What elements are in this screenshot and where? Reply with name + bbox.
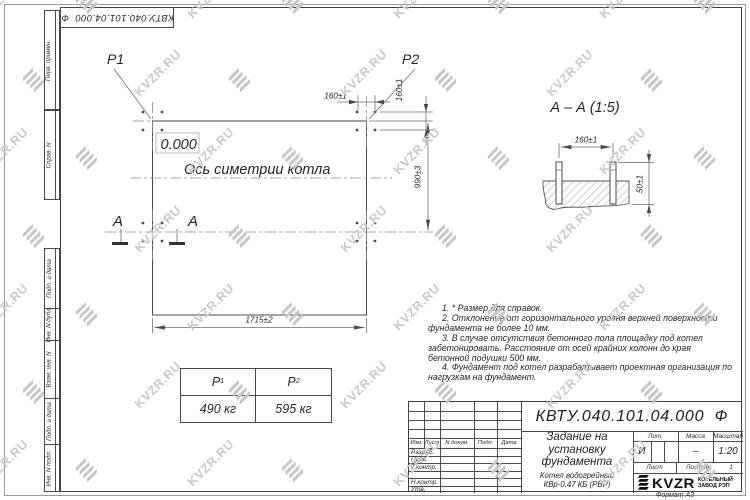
note-4: 4. Фундамент под котел разрабатывает про… <box>428 363 733 383</box>
row-utv: Утв. <box>409 486 442 493</box>
row-razrab: Разраб. <box>409 448 442 456</box>
row-blank <box>409 471 442 478</box>
p2-label: P2 <box>402 51 419 67</box>
section-dim-height-label: 50±1 <box>636 175 645 193</box>
dim-height-label: 990±3 <box>414 165 423 188</box>
section-dim-spacing-label: 160±1 <box>575 136 598 145</box>
kvzr-logo-icon <box>637 475 650 492</box>
lit-label: Лит. <box>633 431 678 441</box>
scale-value: 1:20 <box>713 441 743 462</box>
col-data: Дата <box>497 438 521 448</box>
anchor-bolt-left <box>556 162 562 204</box>
symmetry-axis-label: Ось симетрии котла <box>184 162 330 178</box>
foundation-plan: P1 P2 1715±2 990±3 160±1 160±1 <box>105 51 433 333</box>
scale-label: Масштаб <box>713 431 743 441</box>
title-block: Изм. Лист N докум. Подп. Дата Разраб. Пр… <box>408 401 742 492</box>
row-nkontr: Н.контр. <box>409 478 442 486</box>
section-letter-a2: А <box>187 213 198 230</box>
technical-notes: 1. * Размер для справок. 2. Отклонение о… <box>428 304 733 383</box>
sheets-cell: Листов 1 <box>676 462 743 473</box>
sheets-label: Листов <box>686 464 709 471</box>
load-table-header-p1: P1 <box>181 369 256 396</box>
p2-leader-line <box>369 69 415 119</box>
drawing-sheet: КВТУ.040.101.04.000 Ф Перв. примен. Спра… <box>0 0 750 500</box>
row-tkontr: Т.контр. <box>409 463 442 471</box>
manufacturer-logo-row: KVZR КОТЕЛЬНЫЙ ЗАВОД РЭП <box>633 473 743 493</box>
product-name: Котел водогрейный КВр-0,47 КБ (РВР) <box>521 469 633 493</box>
doc-number: КВТУ.040.101.04.000 Ф <box>521 402 743 431</box>
section-view: А – А (1:5) 160±1 50±1 <box>543 100 654 217</box>
dim-bolt-side-label: 160±1 <box>395 79 404 102</box>
row-prov: Пров. <box>409 456 442 463</box>
p1-leader-line <box>114 69 151 119</box>
section-letter-a1: А <box>112 213 123 230</box>
dim-bolt-top-label: 160±1 <box>324 92 347 101</box>
section-cut-marks: А А <box>112 213 198 244</box>
load-table: P1 P2 490 кг 595 кг <box>180 368 332 423</box>
col-list: Лист <box>424 438 440 448</box>
col-izm: Изм. <box>409 438 424 448</box>
note-3: 3. В случае отсутствия бетонного пола пл… <box>428 334 733 364</box>
anchor-bolt-right <box>610 162 616 204</box>
mass-label: Масса <box>678 431 713 441</box>
load-table-header-p2: P2 <box>256 369 331 396</box>
dim-width-label: 1715±2 <box>245 316 273 325</box>
mass-value: – <box>678 441 713 462</box>
drawing-title: Задание на установку фундамента <box>521 431 633 469</box>
format-label: Формат А3 <box>610 492 740 499</box>
elevation-label: 0.000 <box>161 137 197 153</box>
col-doc: N докум. <box>440 438 474 448</box>
factory-name: КОТЕЛЬНЫЙ ЗАВОД РЭП <box>698 477 734 489</box>
col-podp: Подп. <box>474 438 497 448</box>
lit-value: И <box>633 441 651 462</box>
note-2: 2. Отклонение от горизонтального уровня … <box>428 314 733 334</box>
p1-label: P1 <box>107 51 124 67</box>
load-table-value-p1: 490 кг <box>181 396 256 423</box>
kvzr-logo-text: KVZR <box>652 475 695 491</box>
sheet-label: Лист <box>633 462 676 473</box>
section-title: А – А (1:5) <box>549 100 619 116</box>
load-table-value-p2: 595 кг <box>256 396 331 423</box>
sheets-value: 1 <box>729 464 733 471</box>
